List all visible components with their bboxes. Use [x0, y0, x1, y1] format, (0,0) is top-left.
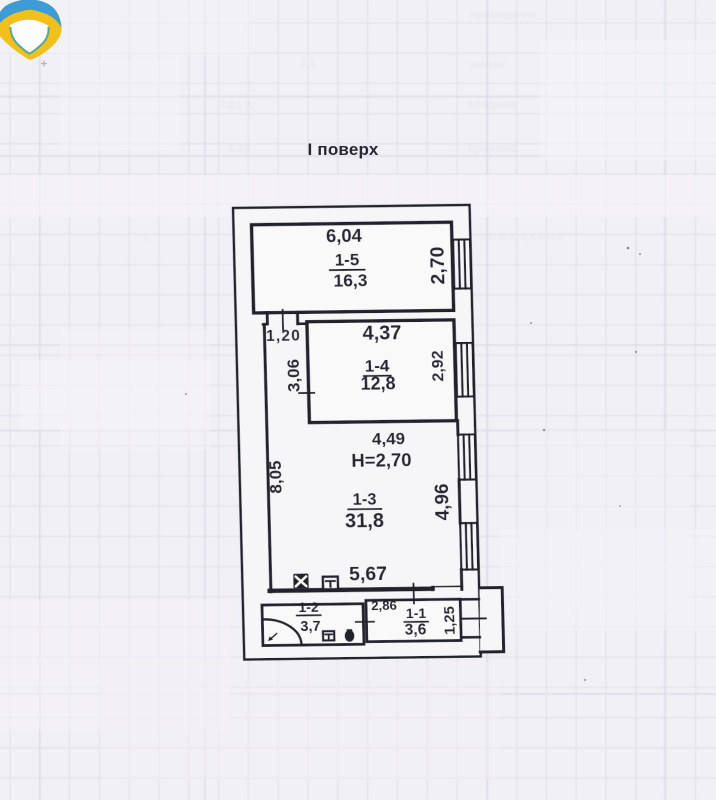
svg-text:1,: 1,: [143, 233, 152, 245]
svg-text:1,32: 1,32: [228, 143, 249, 155]
svg-text:1,21 3,: 1,21 3,: [220, 99, 254, 111]
svg-text:1-1: 1-1: [406, 606, 427, 622]
svg-text:2,92: 2,92: [429, 350, 447, 381]
svg-text:12,8: 12,8: [360, 373, 396, 393]
svg-text:2,86: 2,86: [371, 598, 397, 613]
svg-text:4,49: 4,49: [372, 429, 406, 448]
svg-text:16,3: 16,3: [333, 270, 368, 290]
svg-text:6,04: 6,04: [326, 225, 363, 246]
svg-text:1,20: 1,20: [266, 327, 301, 344]
svg-text:31,8: 31,8: [345, 510, 384, 533]
svg-text:прихожа: прихожа: [468, 143, 517, 155]
svg-text:1,25: 1,25: [442, 606, 459, 635]
svg-text:3,7: 3,7: [300, 619, 321, 635]
svg-text:1-2: 1-2: [298, 599, 319, 615]
svg-text:5,67: 5,67: [349, 563, 387, 585]
svg-text:8,05: 8,05: [266, 460, 286, 493]
svg-text:приміщення: приміщення: [470, 9, 536, 21]
svg-text:п о м е щ е н и е: п о м е щ е н и е: [480, 231, 563, 243]
svg-text:1-3: 1-3: [352, 491, 376, 509]
svg-text:3,6: 3,6: [405, 621, 427, 638]
svg-text:4,37: 4,37: [362, 322, 401, 345]
svg-text:кладова: кладова: [468, 99, 516, 111]
svg-text:1,1: 1,1: [300, 57, 315, 69]
svg-text:1-5: 1-5: [334, 250, 359, 269]
svg-text:3,06: 3,06: [284, 359, 304, 392]
svg-text:4,96: 4,96: [432, 483, 454, 520]
svg-text:Н=2,70: Н=2,70: [351, 449, 412, 471]
svg-text:жилое: жилое: [469, 59, 506, 71]
svg-text:2,70: 2,70: [427, 246, 450, 284]
svg-text:І поверх: І поверх: [308, 140, 379, 159]
